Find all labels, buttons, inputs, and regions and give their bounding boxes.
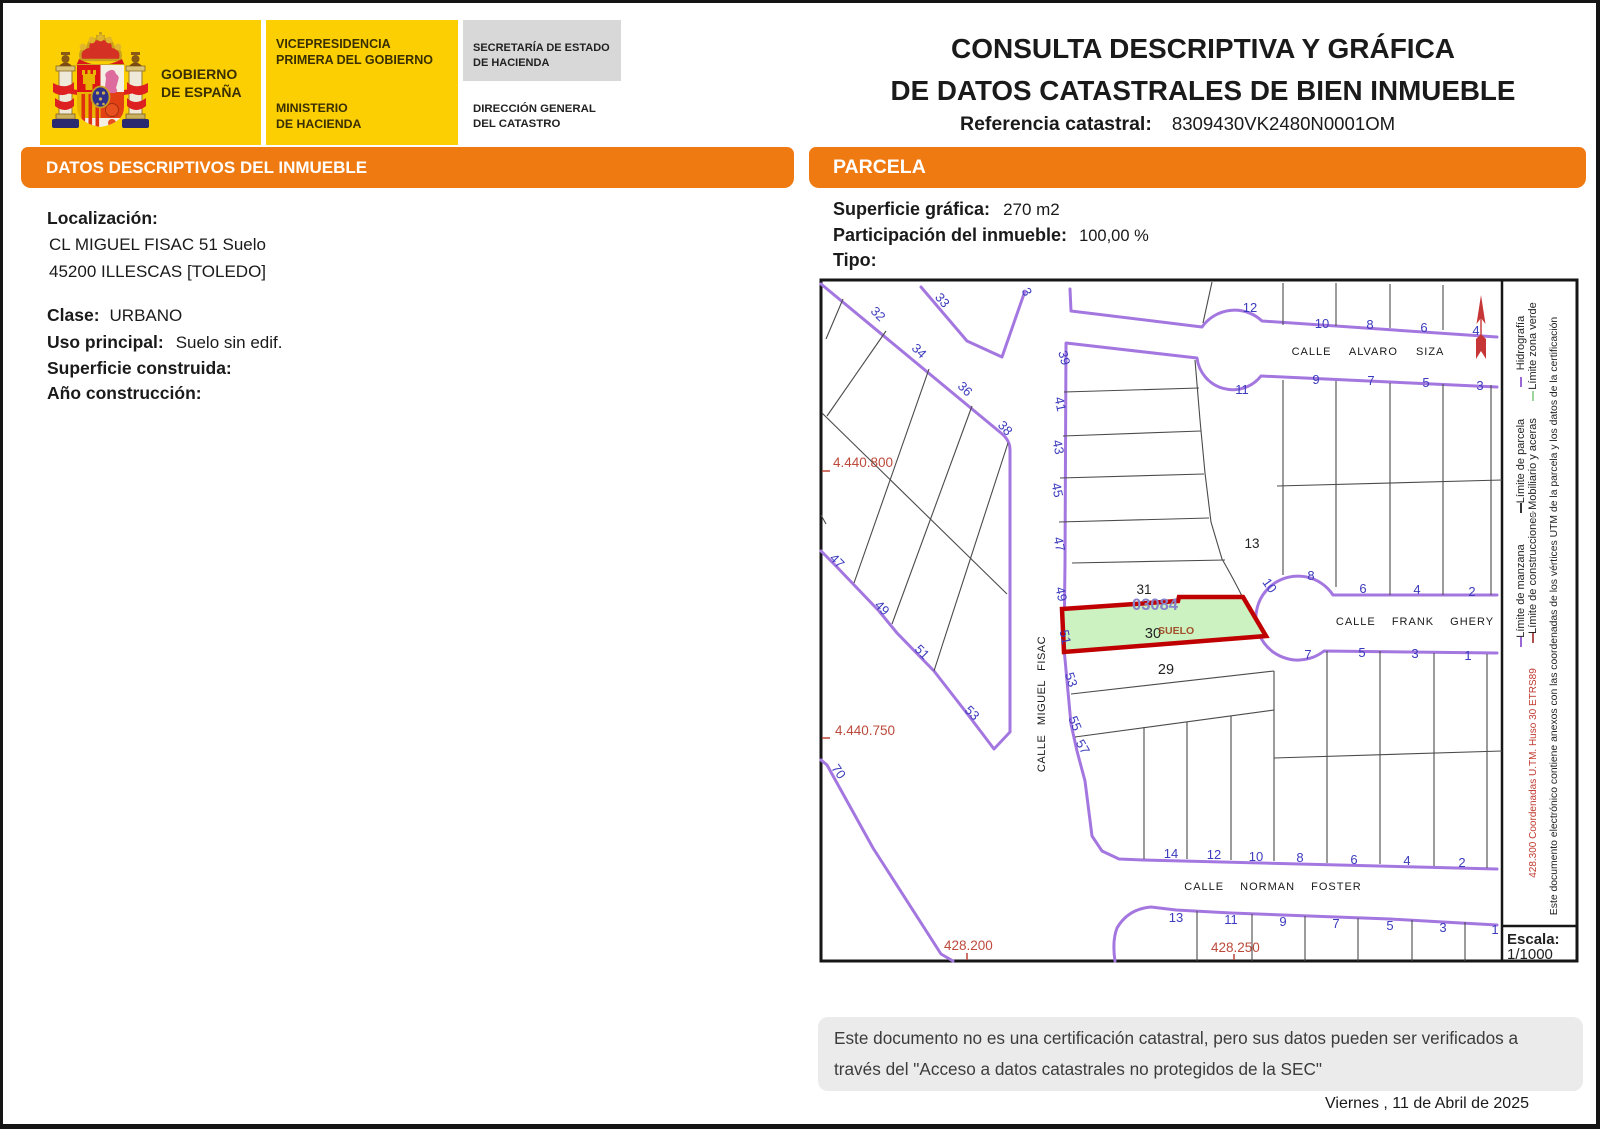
svg-text:14: 14 (1164, 846, 1178, 861)
svg-text:4: 4 (1403, 853, 1410, 868)
svg-text:428.250: 428.250 (1211, 940, 1260, 955)
svg-text:5: 5 (1386, 918, 1393, 933)
svg-text:Límite zona verde: Límite zona verde (1527, 302, 1539, 389)
svg-text:7: 7 (1332, 916, 1339, 931)
svg-text:8: 8 (1307, 568, 1314, 583)
svg-text:49: 49 (1053, 585, 1071, 602)
svg-text:2: 2 (1468, 584, 1475, 599)
svg-text:SUELO: SUELO (1158, 625, 1194, 637)
svg-text:10: 10 (1315, 316, 1329, 331)
svg-text:13: 13 (1169, 910, 1183, 925)
svg-text:10: 10 (1249, 849, 1263, 864)
svg-text:CALLE MIGUEL FISAC: CALLE MIGUEL FISAC (1036, 636, 1048, 772)
svg-text:1/1000: 1/1000 (1507, 946, 1553, 963)
svg-text:5: 5 (1358, 645, 1365, 660)
svg-text:CALLE ALVARO SIZA: CALLE ALVARO SIZA (1292, 346, 1445, 358)
svg-text:7: 7 (1367, 373, 1374, 388)
svg-text:428.300 Coordenadas U.TM. Huso: 428.300 Coordenadas U.TM. Huso 30 ETRS89 (1528, 668, 1539, 878)
svg-text:31: 31 (1136, 582, 1151, 597)
svg-text:Límite de construcciones: Límite de construcciones (1527, 512, 1539, 634)
svg-text:7: 7 (1304, 647, 1311, 662)
svg-text:4.440.750: 4.440.750 (835, 723, 895, 738)
svg-text:2: 2 (1458, 855, 1465, 870)
svg-text:1: 1 (1491, 922, 1498, 937)
svg-text:8: 8 (1366, 317, 1373, 332)
svg-text:4: 4 (1413, 582, 1420, 597)
svg-text:4: 4 (1472, 323, 1479, 338)
svg-text:03084: 03084 (1132, 596, 1179, 614)
svg-text:47: 47 (1051, 535, 1069, 552)
svg-text:41: 41 (1052, 395, 1070, 412)
svg-text:5: 5 (1422, 375, 1429, 390)
svg-text:428.200: 428.200 (944, 938, 993, 953)
svg-text:Límite de manzana: Límite de manzana (1515, 543, 1527, 637)
svg-text:11: 11 (1235, 382, 1249, 397)
svg-text:Mobiliario y aceras: Mobiliario y aceras (1527, 418, 1539, 510)
svg-text:6: 6 (1420, 320, 1427, 335)
svg-text:Límite de parcela: Límite de parcela (1515, 418, 1527, 503)
svg-text:3: 3 (1411, 646, 1418, 661)
svg-text:CALLE NORMAN FOSTER: CALLE NORMAN FOSTER (1184, 881, 1361, 893)
svg-text:1: 1 (1464, 648, 1471, 663)
svg-text:29: 29 (1158, 662, 1174, 678)
svg-text:4.440.800: 4.440.800 (833, 455, 893, 470)
svg-text:6: 6 (1350, 852, 1357, 867)
svg-text:Este documento electrónico con: Este documento electrónico contiene anex… (1549, 317, 1560, 916)
svg-text:8: 8 (1296, 850, 1303, 865)
svg-text:12: 12 (1243, 300, 1257, 315)
svg-text:51: 51 (1057, 628, 1075, 645)
svg-text:45: 45 (1049, 481, 1067, 498)
svg-text:Hidrografía: Hidrografía (1515, 315, 1527, 370)
svg-text:12: 12 (1207, 847, 1221, 862)
svg-text:CALLE FRANK GHERY: CALLE FRANK GHERY (1336, 616, 1494, 628)
svg-text:3: 3 (1476, 378, 1483, 393)
svg-text:13: 13 (1244, 536, 1259, 551)
svg-text:9: 9 (1312, 372, 1319, 387)
svg-text:9: 9 (1279, 914, 1286, 929)
svg-text:6: 6 (1359, 581, 1366, 596)
svg-text:11: 11 (1224, 912, 1238, 927)
svg-text:3: 3 (1439, 920, 1446, 935)
svg-text:43: 43 (1050, 438, 1068, 455)
